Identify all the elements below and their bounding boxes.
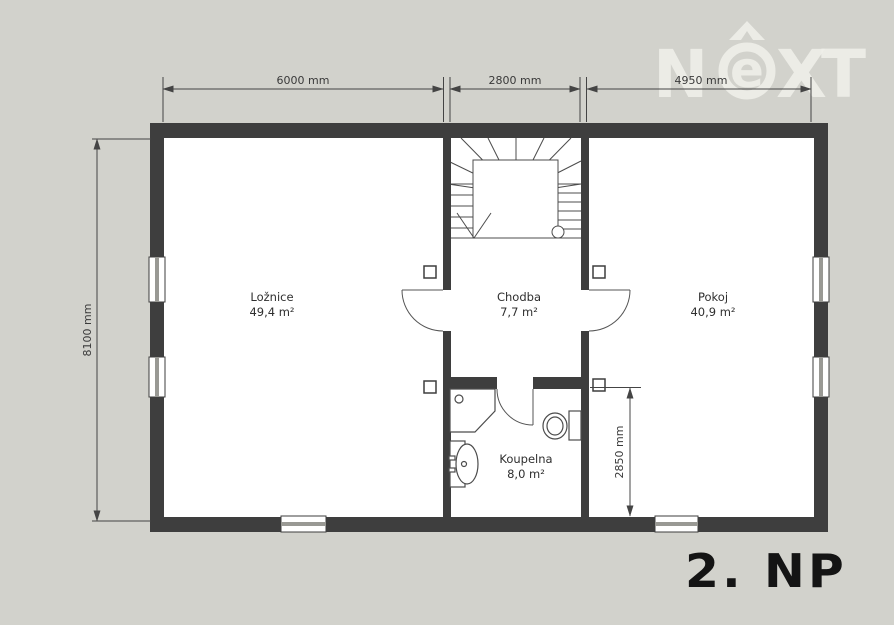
room-label-chodba: Chodba 7,7 m² xyxy=(459,290,579,320)
dimension-interior-2850: 2850 mm xyxy=(613,392,627,512)
exterior-wall-bottom xyxy=(150,517,828,532)
room-area: 7,7 m² xyxy=(459,305,579,320)
room-area: 49,4 m² xyxy=(212,305,332,320)
exterior-wall-left xyxy=(150,123,164,532)
wall-symbol-square xyxy=(424,266,436,278)
window-bottom-right xyxy=(655,516,698,532)
wall-symbol-square xyxy=(424,381,436,393)
dimension-top-6000: 6000 mm xyxy=(243,74,363,88)
dimension-top-2800: 2800 mm xyxy=(455,74,575,88)
logo-letter-e: e xyxy=(730,41,764,99)
wall-symbol-square xyxy=(593,266,605,278)
bathroom-wall-left xyxy=(443,377,497,389)
room-label-koupelna: Koupelna 8,0 m² xyxy=(466,452,586,482)
next-logo: N e X T xyxy=(653,21,866,113)
toilet xyxy=(543,411,581,440)
dimension-left-8100: 8100 mm xyxy=(81,270,95,390)
room-name: Ložnice xyxy=(212,290,332,305)
floor-plan-canvas: N e X T xyxy=(0,0,894,625)
stair-newel-post xyxy=(552,226,564,238)
wall-symbol-square xyxy=(593,379,605,391)
logo-letter-x: X xyxy=(776,36,827,113)
logo-roof-icon xyxy=(729,21,765,40)
window-right-upper xyxy=(813,257,829,302)
logo-letter-t: T xyxy=(821,36,866,113)
room-area: 8,0 m² xyxy=(466,467,586,482)
window-left-lower xyxy=(149,357,165,397)
window-right-lower xyxy=(813,357,829,397)
room-label-loznice: Ložnice 49,4 m² xyxy=(212,290,332,320)
exterior-wall-right xyxy=(814,123,828,532)
room-name: Pokoj xyxy=(653,290,773,305)
exterior-wall-top xyxy=(150,123,828,138)
stair-void xyxy=(473,160,558,238)
room-label-pokoj: Pokoj 40,9 m² xyxy=(653,290,773,320)
interior-wall-left-upper xyxy=(443,138,451,290)
interior-wall-right-upper xyxy=(581,138,589,290)
window-bottom-left xyxy=(281,516,326,532)
interior-wall-right-lower xyxy=(581,331,589,517)
window-left-upper xyxy=(149,257,165,302)
dimension-top-4950: 4950 mm xyxy=(641,74,761,88)
room-name: Chodba xyxy=(459,290,579,305)
room-area: 40,9 m² xyxy=(653,305,773,320)
bathroom-wall-right xyxy=(533,377,589,389)
room-name: Koupelna xyxy=(466,452,586,467)
floor-level-label: 2. NP xyxy=(685,544,886,598)
